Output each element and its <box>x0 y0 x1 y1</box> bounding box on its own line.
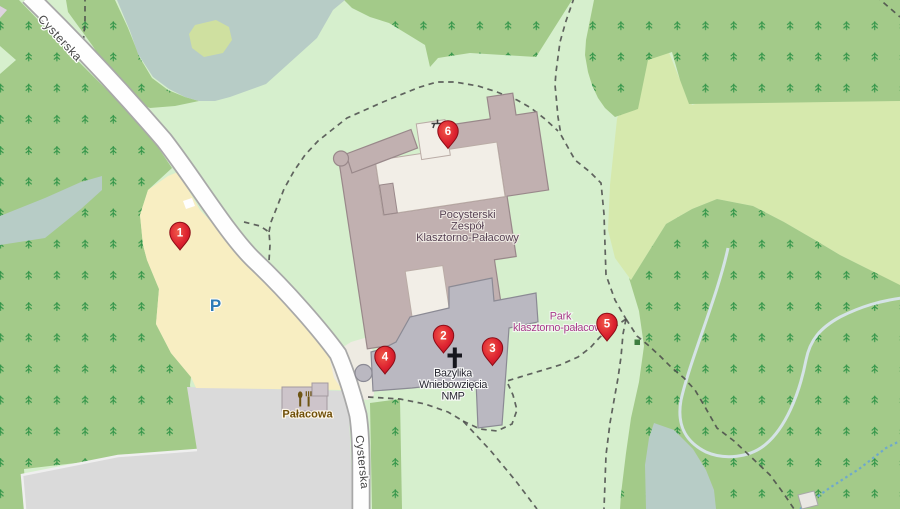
svg-text:Park: Park <box>550 311 572 323</box>
svg-text:2: 2 <box>440 331 446 343</box>
svg-text:3: 3 <box>489 343 495 355</box>
svg-text:Klasztorno-Pałacowy: Klasztorno-Pałacowy <box>416 232 519 244</box>
svg-text:1: 1 <box>177 228 184 240</box>
svg-text:6: 6 <box>445 126 451 138</box>
svg-text:4: 4 <box>382 352 389 364</box>
svg-text:Pocysterski: Pocysterski <box>439 209 495 221</box>
svg-text:Bazylika: Bazylika <box>434 368 472 380</box>
svg-text:P: P <box>210 296 221 315</box>
svg-text:5: 5 <box>604 319 611 331</box>
svg-text:Zespół: Zespół <box>451 221 485 233</box>
svg-text:Pałacowa: Pałacowa <box>282 409 333 421</box>
svg-text:Wniebowzięcia: Wniebowzięcia <box>419 379 487 391</box>
svg-text:NMP: NMP <box>441 391 464 403</box>
svg-text:klasztorno-pałacowy: klasztorno-pałacowy <box>513 322 608 334</box>
